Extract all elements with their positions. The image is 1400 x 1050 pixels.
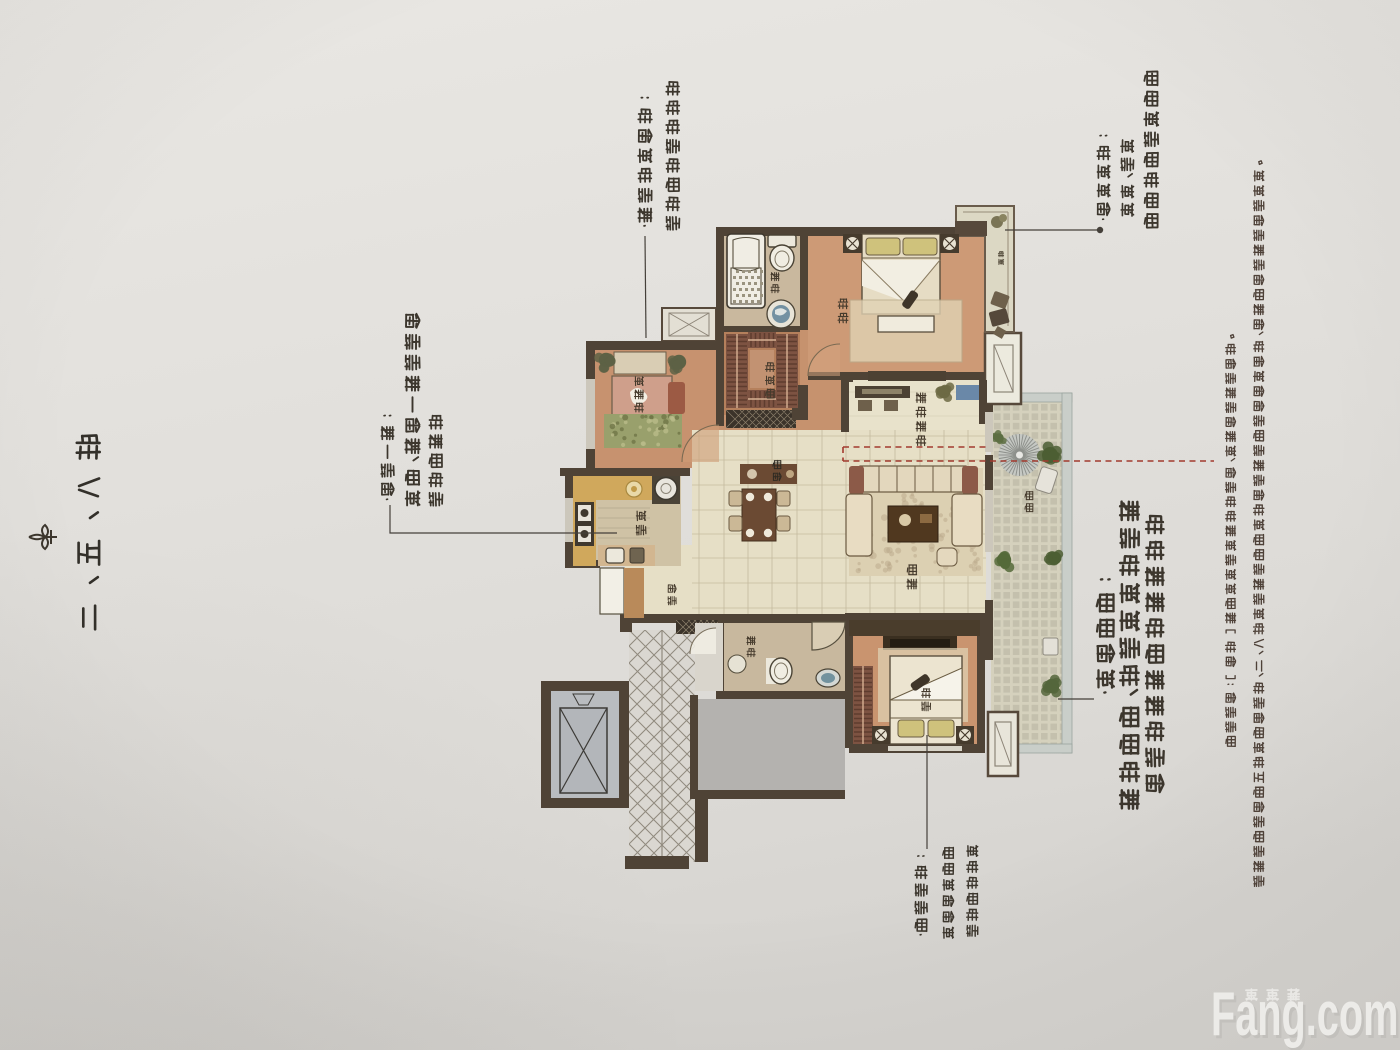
svg-text:Fang.com: Fang.com [1211,980,1398,1049]
